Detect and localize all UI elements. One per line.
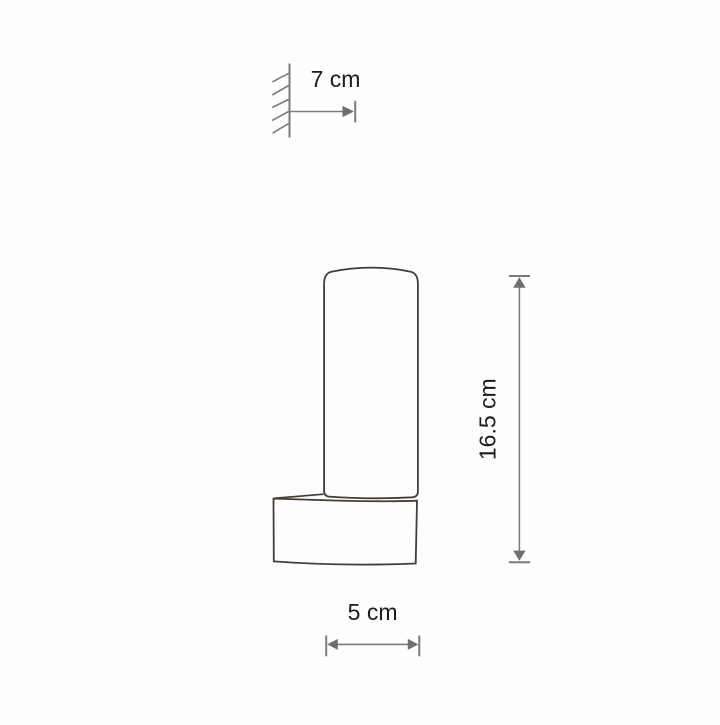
svg-text:5 cm: 5 cm (348, 599, 398, 625)
svg-text:7 cm: 7 cm (311, 66, 361, 92)
svg-text:16.5 cm: 16.5 cm (474, 378, 500, 460)
